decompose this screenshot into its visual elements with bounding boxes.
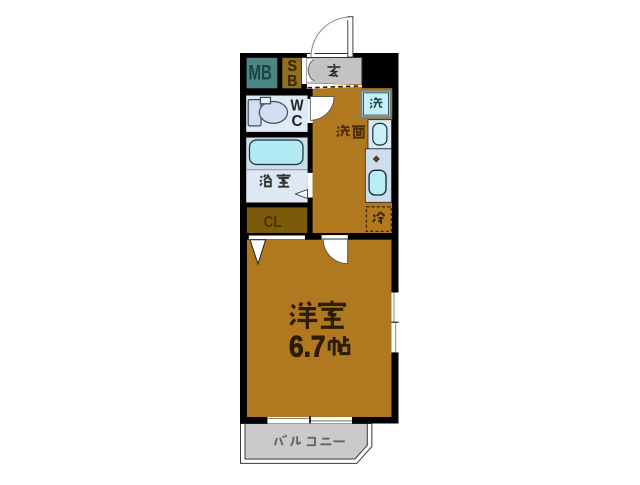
svg-text:W: W (291, 97, 304, 114)
svg-text:6.7: 6.7 (289, 331, 326, 364)
svg-text:MB: MB (248, 62, 272, 85)
svg-text:CL: CL (264, 214, 282, 231)
svg-text:B: B (287, 73, 297, 90)
svg-text:C: C (292, 113, 303, 130)
